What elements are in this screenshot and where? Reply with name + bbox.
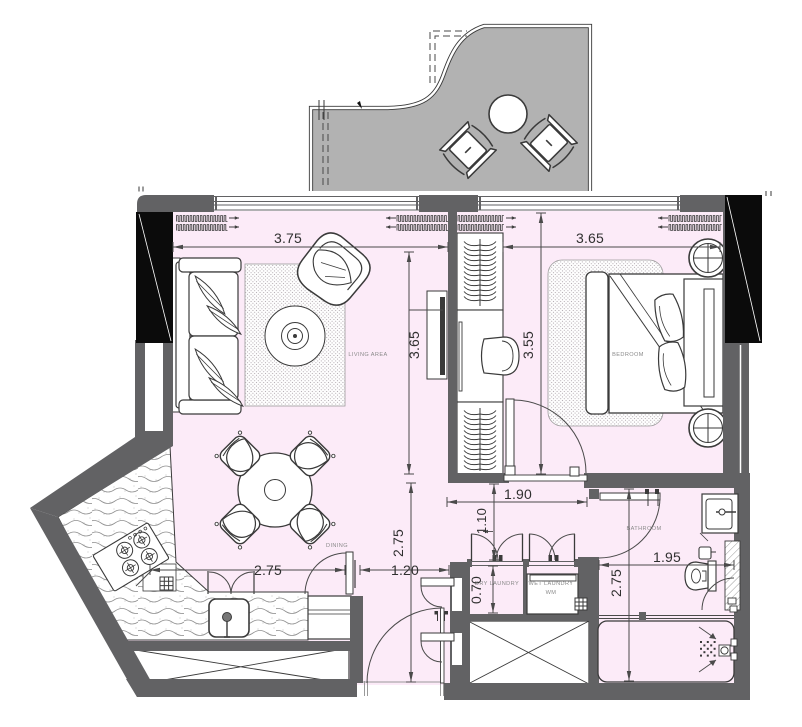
svg-text:1.20: 1.20: [391, 562, 419, 578]
svg-text:1.95: 1.95: [653, 549, 681, 565]
svg-text:3.65: 3.65: [406, 331, 422, 359]
svg-text:BEDROOM: BEDROOM: [612, 352, 644, 358]
svg-text:BATHROOM: BATHROOM: [626, 526, 661, 532]
svg-text:3.55: 3.55: [520, 331, 536, 359]
svg-text:3.65: 3.65: [576, 230, 604, 246]
svg-text:DINING: DINING: [326, 543, 348, 549]
svg-text:2.75: 2.75: [608, 569, 624, 597]
svg-text:2.75: 2.75: [254, 562, 282, 578]
svg-text:1.90: 1.90: [504, 486, 532, 502]
svg-text:WM: WM: [546, 590, 557, 596]
svg-text:WET LAUNDRY: WET LAUNDRY: [529, 581, 574, 587]
svg-text:2.75: 2.75: [390, 529, 406, 557]
svg-text:LIVING AREA: LIVING AREA: [348, 352, 387, 358]
svg-text:3.75: 3.75: [274, 230, 302, 246]
svg-text:1.10: 1.10: [474, 508, 489, 534]
svg-text:0.70: 0.70: [468, 576, 484, 604]
